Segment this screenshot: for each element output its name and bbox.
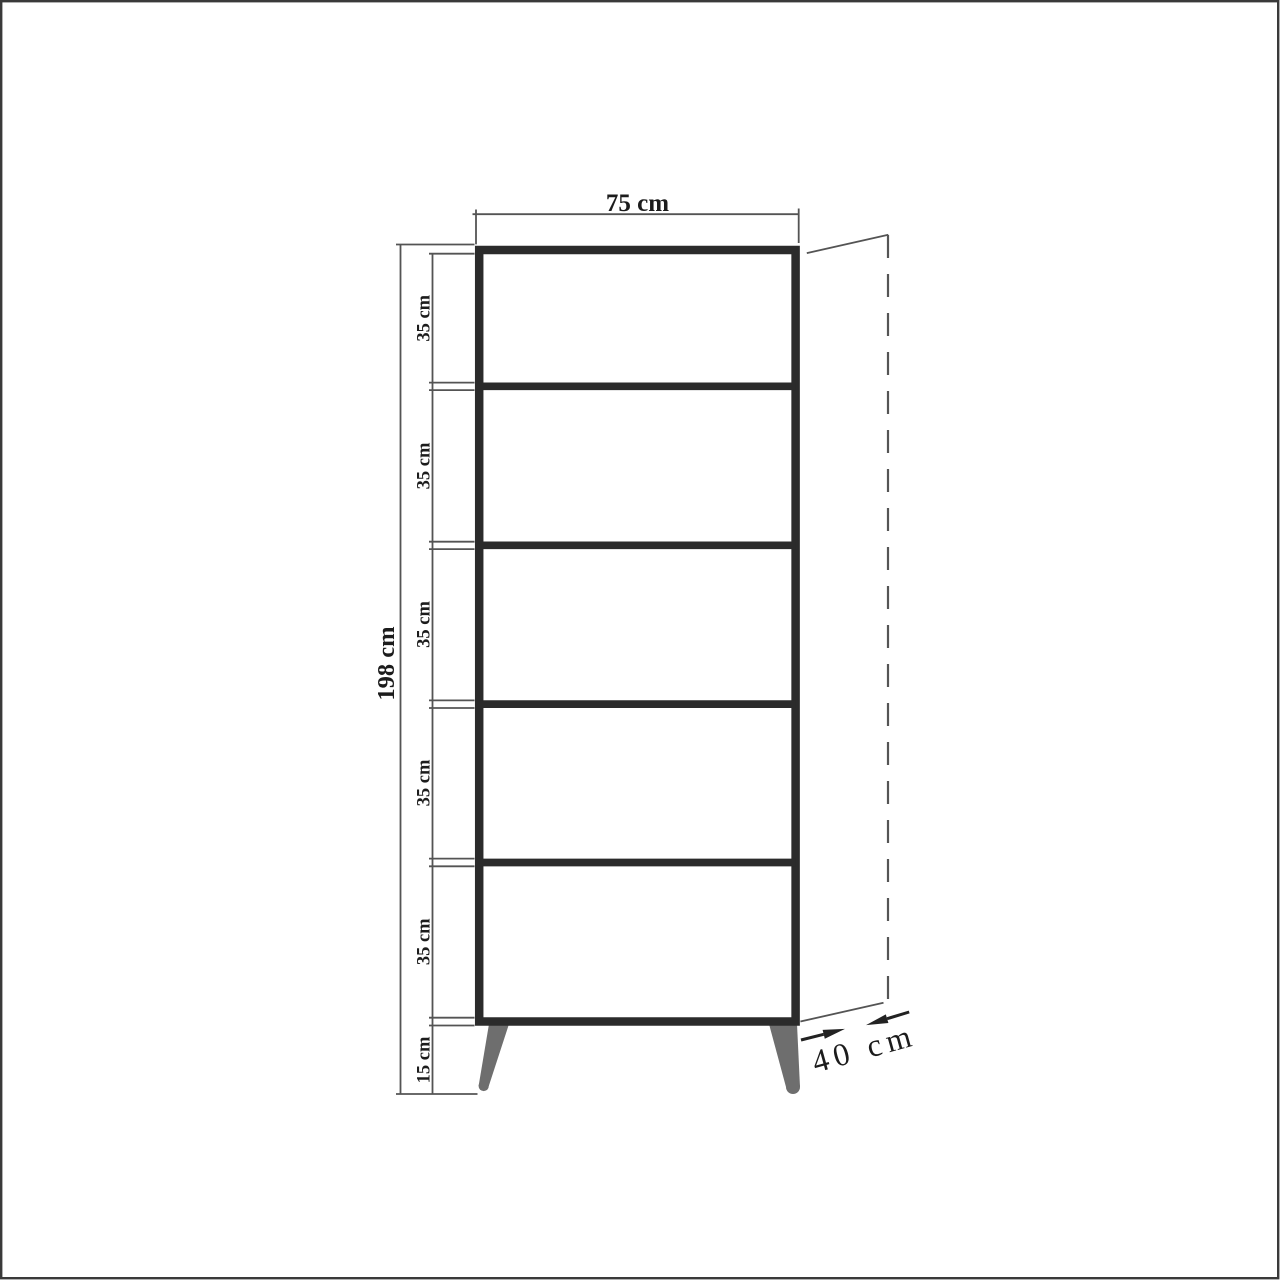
svg-text:35 cm: 35 cm (415, 601, 435, 648)
svg-text:75 cm: 75 cm (606, 190, 669, 217)
svg-text:35 cm: 35 cm (415, 918, 435, 965)
svg-text:35 cm: 35 cm (415, 442, 435, 489)
svg-text:15 cm: 15 cm (415, 1036, 435, 1083)
svg-text:35 cm: 35 cm (415, 294, 435, 341)
svg-text:35 cm: 35 cm (415, 759, 435, 806)
svg-text:198 cm: 198 cm (373, 626, 400, 700)
